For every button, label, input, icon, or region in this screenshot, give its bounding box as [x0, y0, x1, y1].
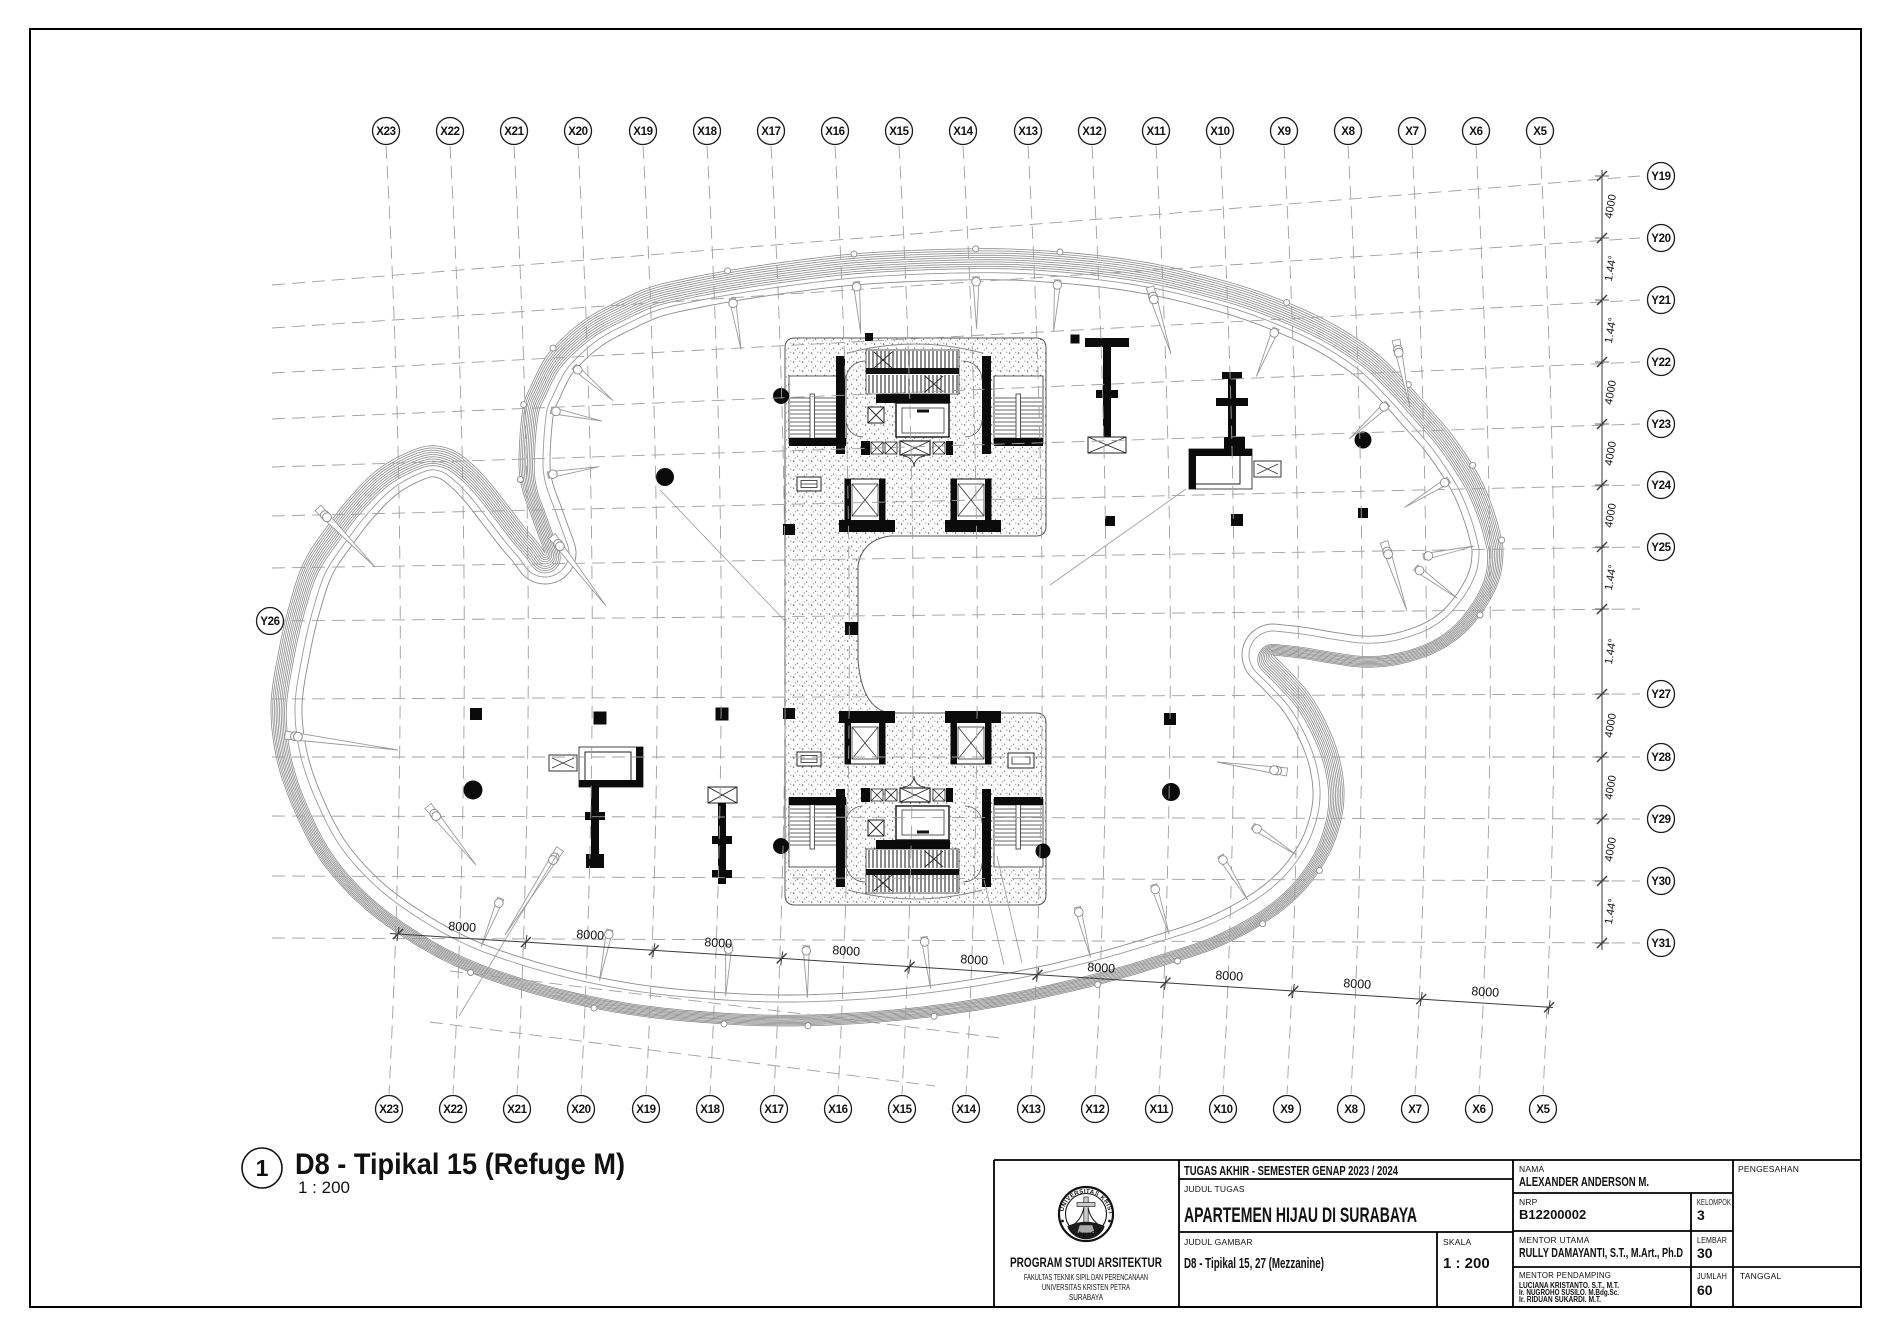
svg-text:X19: X19 — [633, 126, 653, 138]
svg-text:X18: X18 — [697, 126, 717, 138]
svg-text:JUMLAH: JUMLAH — [1697, 1271, 1727, 1281]
svg-text:8000: 8000 — [1087, 960, 1116, 976]
svg-text:B12200002: B12200002 — [1519, 1207, 1586, 1222]
svg-text:8000: 8000 — [1215, 968, 1244, 984]
svg-text:APARTEMEN HIJAU DI SURABAYA: APARTEMEN HIJAU DI SURABAYA — [1184, 1204, 1417, 1227]
svg-text:X15: X15 — [889, 126, 909, 138]
svg-text:X5: X5 — [1536, 1104, 1550, 1116]
svg-text:SKALA: SKALA — [1443, 1237, 1472, 1247]
svg-text:Y31: Y31 — [1651, 938, 1671, 950]
svg-text:Y24: Y24 — [1651, 480, 1671, 492]
svg-text:X23: X23 — [376, 126, 396, 138]
svg-text:KELOMPOK: KELOMPOK — [1697, 1197, 1731, 1207]
svg-text:8000: 8000 — [960, 952, 989, 968]
svg-text:X21: X21 — [504, 126, 524, 138]
svg-text:8000: 8000 — [576, 927, 605, 943]
svg-text:Y20: Y20 — [1651, 233, 1671, 245]
svg-text:D8 - Tipikal 15, 27 (Mezzanine: D8 - Tipikal 15, 27 (Mezzanine) — [1184, 1255, 1324, 1272]
svg-text:Y30: Y30 — [1651, 876, 1671, 888]
svg-text:Y23: Y23 — [1651, 419, 1671, 431]
svg-text:LEMBAR: LEMBAR — [1697, 1235, 1727, 1245]
svg-text:X13: X13 — [1018, 126, 1038, 138]
svg-text:8000: 8000 — [704, 935, 733, 951]
svg-text:60: 60 — [1697, 1282, 1713, 1298]
svg-text:X22: X22 — [440, 126, 460, 138]
svg-text:X7: X7 — [1405, 126, 1418, 138]
svg-text:8000: 8000 — [832, 943, 861, 959]
svg-text:X23: X23 — [379, 1104, 399, 1116]
svg-text:X9: X9 — [1277, 126, 1290, 138]
svg-text:X11: X11 — [1150, 1104, 1170, 1116]
svg-text:SURABAYA: SURABAYA — [1069, 1293, 1104, 1302]
svg-text:X12: X12 — [1082, 126, 1102, 138]
svg-text:X21: X21 — [507, 1104, 527, 1116]
svg-text:X17: X17 — [761, 126, 781, 138]
svg-text:1: 1 — [256, 1155, 269, 1181]
svg-text:X7: X7 — [1408, 1104, 1421, 1116]
svg-text:Y19: Y19 — [1651, 171, 1671, 183]
svg-text:8000: 8000 — [448, 919, 477, 935]
svg-text:X9: X9 — [1280, 1104, 1293, 1116]
svg-text:NRP: NRP — [1519, 1197, 1538, 1207]
svg-text:X6: X6 — [1469, 126, 1482, 138]
svg-text:X19: X19 — [636, 1104, 656, 1116]
svg-text:1 : 200: 1 : 200 — [298, 1178, 350, 1197]
svg-text:X18: X18 — [700, 1104, 720, 1116]
svg-text:X10: X10 — [1213, 1104, 1233, 1116]
svg-text:X10: X10 — [1210, 126, 1230, 138]
svg-text:D8 - Tipikal 15 (Refuge M): D8 - Tipikal 15 (Refuge M) — [295, 1148, 625, 1181]
svg-text:X16: X16 — [828, 1104, 848, 1116]
svg-text:X6: X6 — [1472, 1104, 1485, 1116]
svg-text:X14: X14 — [953, 126, 973, 138]
svg-text:ALEXANDER ANDERSON M.: ALEXANDER ANDERSON M. — [1519, 1174, 1649, 1189]
svg-text:UNIVERSITAS KRISTEN PETRA: UNIVERSITAS KRISTEN PETRA — [1042, 1283, 1130, 1292]
svg-text:TUGAS AKHIR - SEMESTER GENAP 2: TUGAS AKHIR - SEMESTER GENAP 2023 / 2024 — [1184, 1163, 1399, 1178]
svg-text:X16: X16 — [825, 126, 845, 138]
svg-text:JUDUL GAMBAR: JUDUL GAMBAR — [1184, 1237, 1253, 1247]
svg-text:RULLY DAMAYANTI, S.T., M.Art.,: RULLY DAMAYANTI, S.T., M.Art., Ph.D — [1519, 1245, 1683, 1260]
svg-text:PROGRAM STUDI ARSITEKTUR: PROGRAM STUDI ARSITEKTUR — [1010, 1255, 1162, 1270]
svg-text:MENTOR UTAMA: MENTOR UTAMA — [1519, 1235, 1590, 1245]
svg-text:MENTOR PENDAMPING: MENTOR PENDAMPING — [1519, 1270, 1611, 1280]
svg-text:Y28: Y28 — [1651, 752, 1671, 764]
svg-text:X15: X15 — [892, 1104, 912, 1116]
svg-text:X8: X8 — [1341, 126, 1355, 138]
svg-text:PENGESAHAN: PENGESAHAN — [1738, 1164, 1799, 1174]
svg-text:8000: 8000 — [1471, 984, 1500, 1000]
svg-text:X5: X5 — [1533, 126, 1547, 138]
svg-text:TANGGAL: TANGGAL — [1740, 1271, 1781, 1281]
svg-text:X17: X17 — [764, 1104, 784, 1116]
svg-text:3: 3 — [1697, 1207, 1705, 1223]
svg-text:Y25: Y25 — [1651, 542, 1671, 554]
svg-text:Y21: Y21 — [1651, 295, 1671, 307]
svg-text:JUDUL TUGAS: JUDUL TUGAS — [1184, 1184, 1245, 1194]
svg-text:Ir. RIDUAN SUKARDI. M.T.: Ir. RIDUAN SUKARDI. M.T. — [1519, 1295, 1601, 1304]
svg-text:X11: X11 — [1147, 126, 1167, 138]
svg-text:X13: X13 — [1021, 1104, 1041, 1116]
svg-text:1 : 200: 1 : 200 — [1443, 1255, 1490, 1272]
svg-text:X20: X20 — [571, 1104, 591, 1116]
svg-text:Y22: Y22 — [1651, 357, 1671, 369]
svg-text:X8: X8 — [1344, 1104, 1358, 1116]
svg-text:X14: X14 — [956, 1104, 976, 1116]
svg-text:Y27: Y27 — [1651, 689, 1671, 701]
svg-text:Y29: Y29 — [1651, 814, 1671, 826]
svg-text:X20: X20 — [568, 126, 588, 138]
svg-text:NAMA: NAMA — [1519, 1164, 1544, 1174]
svg-text:FAKULTAS TEKNIK SIPIL DAN PERE: FAKULTAS TEKNIK SIPIL DAN PERENCANAAN — [1024, 1273, 1148, 1282]
svg-text:8000: 8000 — [1343, 976, 1372, 992]
svg-text:Y26: Y26 — [260, 616, 280, 628]
svg-text:30: 30 — [1697, 1245, 1713, 1261]
svg-text:X22: X22 — [443, 1104, 463, 1116]
svg-text:X12: X12 — [1085, 1104, 1105, 1116]
